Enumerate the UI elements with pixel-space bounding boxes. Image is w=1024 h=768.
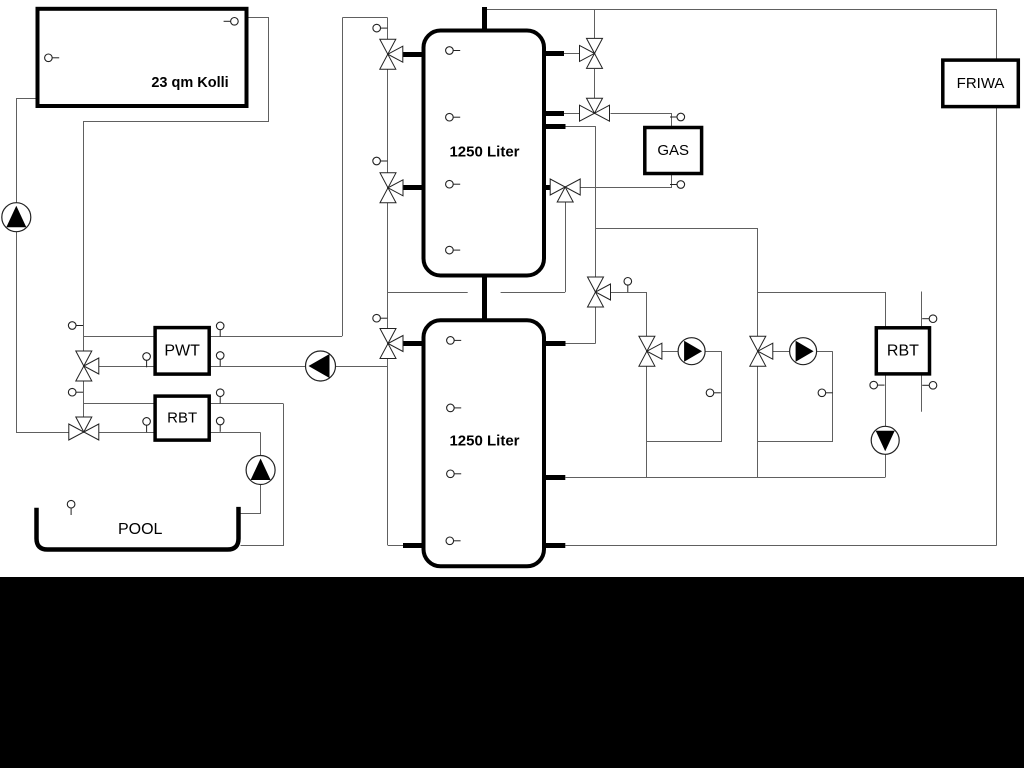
svg-text:POOL: POOL — [118, 521, 163, 538]
svg-text:FRIWA: FRIWA — [957, 75, 1005, 92]
svg-text:RBT: RBT — [887, 342, 919, 359]
svg-text:1250 Liter: 1250 Liter — [449, 144, 519, 161]
svg-text:23 qm Kolli: 23 qm Kolli — [151, 75, 228, 91]
svg-text:1250 Liter: 1250 Liter — [449, 433, 519, 450]
svg-text:GAS: GAS — [657, 142, 689, 159]
svg-text:RBT: RBT — [167, 410, 197, 427]
svg-text:PWT: PWT — [164, 342, 200, 359]
